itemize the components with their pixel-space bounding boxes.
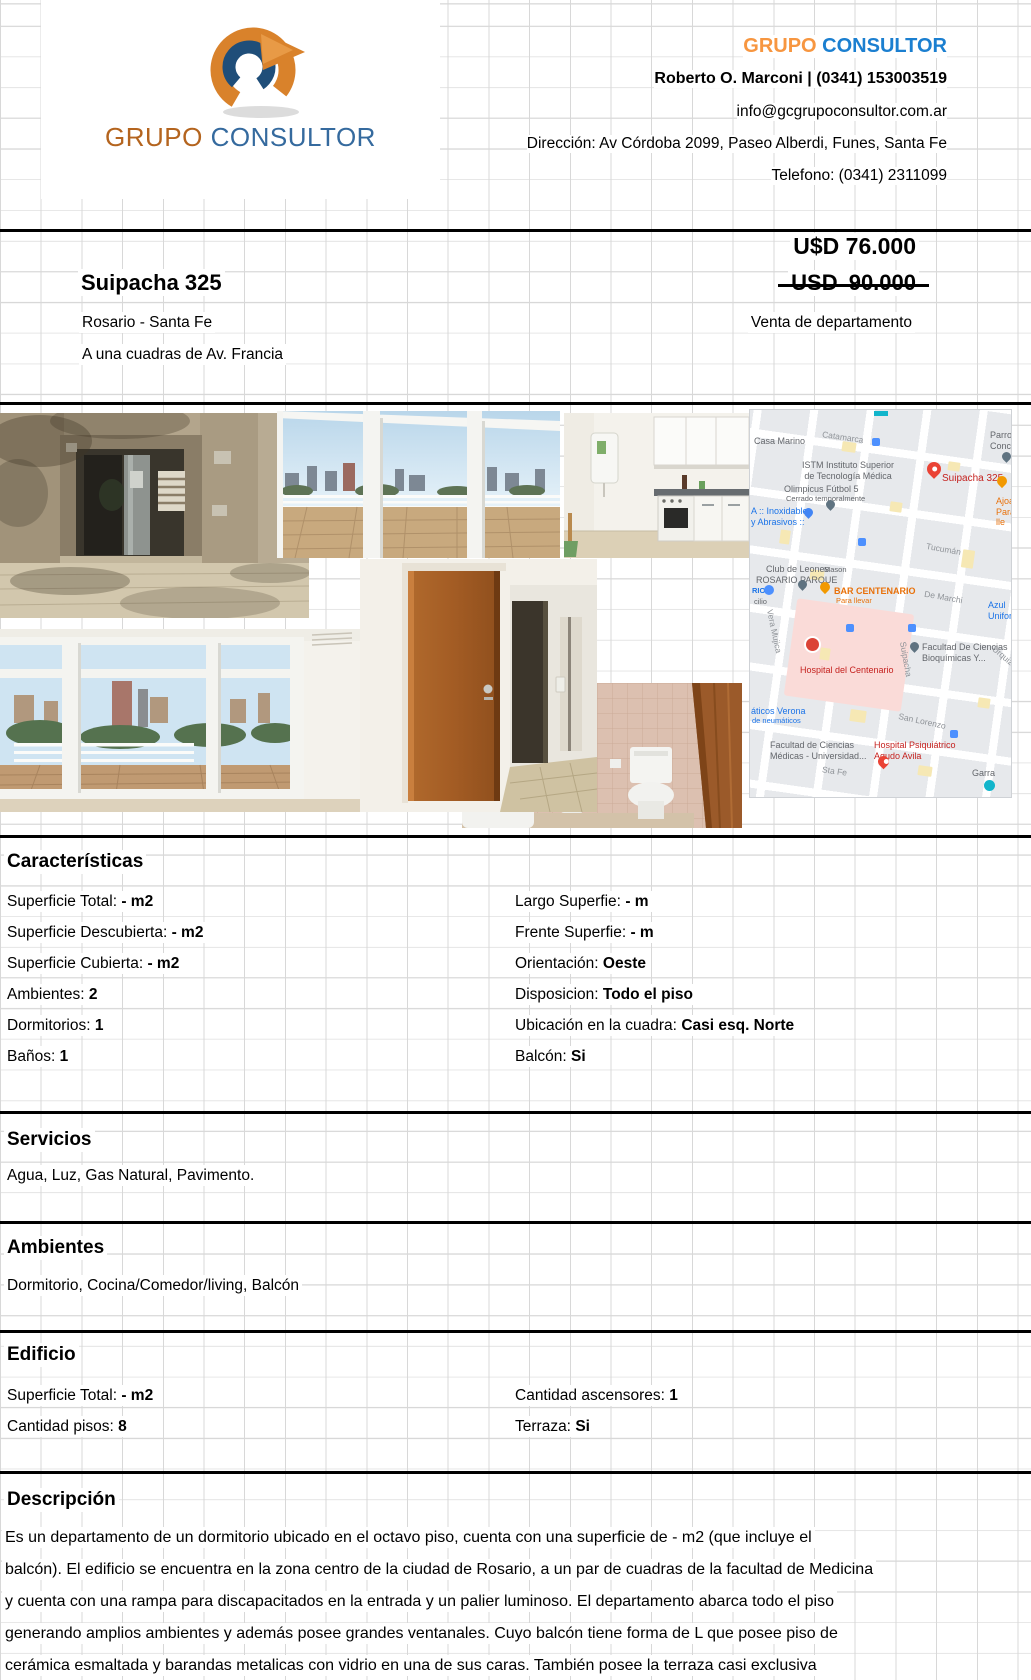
map-label: cilio bbox=[754, 598, 767, 607]
logo-mark-icon bbox=[201, 22, 311, 122]
photo-kitchen bbox=[564, 413, 749, 558]
map-label: Facultad de Ciencias Médicas - Universid… bbox=[770, 740, 867, 761]
map-label: Club de Leones bbox=[766, 564, 829, 575]
map-label: Ajoarr Para lle bbox=[996, 496, 1012, 528]
descripcion-line: balcón). El edificio se encuentra en la … bbox=[2, 1559, 876, 1580]
map-place-icon bbox=[984, 780, 995, 791]
photo-living-window bbox=[0, 629, 366, 812]
map-transit-icon bbox=[908, 624, 916, 632]
section-divider bbox=[0, 1221, 1031, 1224]
descripcion-line: generando amplios ambientes y además pos… bbox=[2, 1623, 841, 1644]
section-divider bbox=[0, 1111, 1031, 1114]
map-label: Mason bbox=[824, 566, 847, 575]
map-transit-icon bbox=[846, 624, 854, 632]
company-logo: GRUPO CONSULTOR bbox=[41, 0, 440, 199]
section-caracteristicas: Características bbox=[4, 850, 146, 874]
property-note: A una cuadras de Av. Francia bbox=[79, 344, 286, 365]
section-divider bbox=[0, 1330, 1031, 1333]
row-superficie-total: Superficie Total: - m2 bbox=[4, 891, 156, 912]
row-disposicion: Disposicion: Todo el piso bbox=[512, 984, 696, 1005]
section-divider bbox=[0, 835, 1031, 838]
map-transit-icon bbox=[950, 730, 958, 738]
descripcion-line: cerámica esmaltada y barandas metalicas … bbox=[2, 1655, 820, 1676]
property-title: Suipacha 325 bbox=[78, 269, 225, 296]
brand-name: GRUPO CONSULTOR bbox=[743, 35, 947, 58]
servicios-text: Agua, Luz, Gas Natural, Pavimento. bbox=[4, 1165, 257, 1186]
photo-balcony-view bbox=[277, 411, 560, 558]
section-divider bbox=[0, 402, 1031, 405]
map-label: BAR CENTENARIO bbox=[834, 586, 916, 597]
map-label: Azul Uniform bbox=[988, 600, 1012, 621]
section-edificio: Edificio bbox=[4, 1343, 79, 1367]
row-cantidad-ascensores: Cantidad ascensores: 1 bbox=[512, 1385, 681, 1406]
map-label: Olimpicus Fútbol 5 bbox=[784, 484, 859, 495]
row-superficie-cubierta: Superficie Cubierta: - m2 bbox=[4, 953, 182, 974]
row-orientacion: Orientación: Oeste bbox=[512, 953, 649, 974]
row-largo-superficie: Largo Superfie: - m bbox=[512, 891, 652, 912]
row-frente-superficie: Frente Superfie: - m bbox=[512, 922, 657, 943]
row-ubicacion-cuadra: Ubicación en la cuadra: Casi esq. Norte bbox=[512, 1015, 797, 1036]
section-ambientes: Ambientes bbox=[4, 1236, 107, 1260]
operation-type: Venta de departamento bbox=[748, 312, 915, 333]
section-descripcion: Descripción bbox=[4, 1488, 119, 1512]
section-divider bbox=[0, 229, 1031, 232]
map-transit-icon bbox=[858, 538, 866, 546]
photo-interior-door bbox=[360, 559, 597, 812]
map-place-icon bbox=[764, 585, 774, 595]
listing-sheet: GRUPO CONSULTOR GRUPO CONSULTOR Roberto … bbox=[0, 0, 1031, 1680]
map-hospital-h-icon bbox=[804, 636, 821, 653]
logo-wordmark: GRUPO CONSULTOR bbox=[41, 122, 440, 153]
map-label: Para llevar bbox=[836, 597, 872, 606]
row-dormitorios: Dormitorios: 1 bbox=[4, 1015, 106, 1036]
row-cantidad-pisos: Cantidad pisos: 8 bbox=[4, 1416, 130, 1437]
map-label: A :: Inoxidables y Abrasivos :: bbox=[751, 506, 812, 527]
map-label: de neumáticos bbox=[752, 717, 801, 726]
row-terraza: Terraza: Si bbox=[512, 1416, 593, 1437]
section-divider bbox=[0, 1471, 1031, 1474]
row-balcon: Balcón: Si bbox=[512, 1046, 589, 1067]
location-map: Casa Marino Catamarca ISTM Instituto Sup… bbox=[749, 409, 1012, 798]
property-city: Rosario - Santa Fe bbox=[79, 312, 215, 333]
row-banos: Baños: 1 bbox=[4, 1046, 71, 1067]
map-label: Casa Marino bbox=[754, 436, 805, 447]
descripcion-line: y cuenta con una rampa para discapacitad… bbox=[2, 1591, 837, 1612]
map-label: Hospital del Centenario bbox=[800, 665, 894, 676]
map-label: ISTM Instituto Superior de Tecnología Mé… bbox=[802, 460, 894, 481]
price-current: U$D 76.000 bbox=[790, 233, 919, 260]
row-edificio-superficie: Superficie Total: - m2 bbox=[4, 1385, 156, 1406]
map-label: Parro Conc bbox=[990, 430, 1012, 451]
price-old: USD 90.000 bbox=[788, 270, 919, 296]
map-hospital-area bbox=[784, 598, 914, 711]
map-transit-icon bbox=[872, 438, 880, 446]
map-label: Garra bbox=[972, 768, 995, 779]
section-servicios: Servicios bbox=[4, 1128, 95, 1152]
row-ambientes: Ambientes: 2 bbox=[4, 984, 100, 1005]
descripcion-line: Es un departamento de un dormitorio ubic… bbox=[2, 1527, 815, 1548]
map-label: áticos Verona bbox=[751, 706, 806, 717]
ambientes-text: Dormitorio, Cocina/Comedor/living, Balcó… bbox=[4, 1275, 302, 1296]
photo-building-entrance bbox=[0, 413, 309, 618]
office-address: Dirección: Av Córdoba 2099, Paseo Alberd… bbox=[527, 135, 947, 153]
email: info@gcgrupoconsultor.com.ar bbox=[737, 103, 947, 121]
row-superficie-descubierta: Superficie Descubierta: - m2 bbox=[4, 922, 206, 943]
agent-contact: Roberto O. Marconi | (0341) 153003519 bbox=[654, 70, 947, 88]
map-ui-fragment bbox=[874, 411, 888, 416]
map-pin-label: Suipacha 325 bbox=[942, 474, 1003, 485]
office-phone: Telefono: (0341) 2311099 bbox=[771, 167, 947, 185]
